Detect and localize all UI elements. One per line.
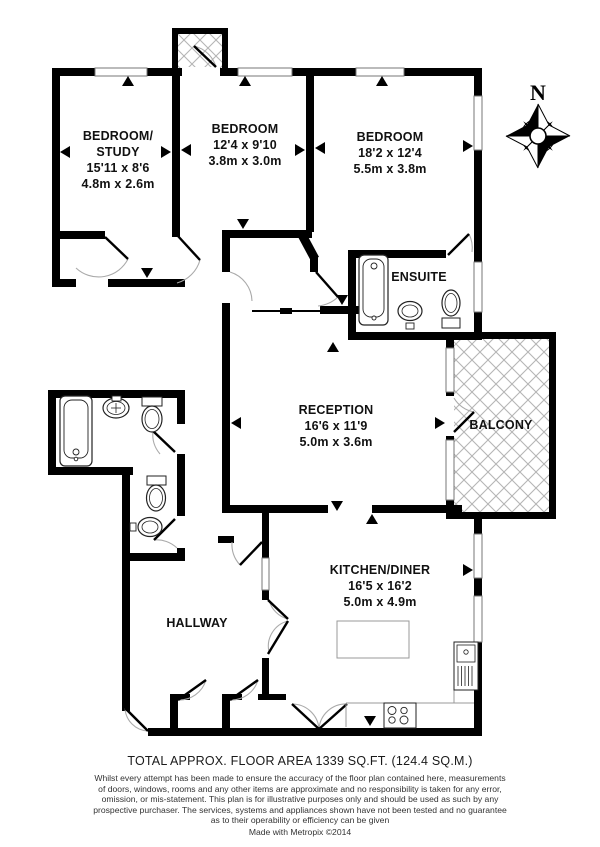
wc-sink xyxy=(130,518,162,537)
hob xyxy=(384,703,416,728)
reception-dims-metric: 5.0m x 3.6m xyxy=(299,435,372,449)
bedroom2-label: BEDROOM xyxy=(212,122,279,136)
disclaimer-line2: of doors, windows, rooms and any other i… xyxy=(0,784,600,795)
floor-plan-svg: N BEDROOM/ STUDY 15'11 x 8'6 4.8m x 2.6m… xyxy=(0,0,600,745)
bedroom2-dims-imperial: 12'4 x 9'10 xyxy=(213,138,277,152)
kitchen-label: KITCHEN/DINER xyxy=(330,563,431,577)
window-bedroom3-right xyxy=(474,96,482,150)
window-divider-panel xyxy=(262,558,269,590)
reception-dims-imperial: 16'6 x 11'9 xyxy=(304,419,367,433)
kitchen-dims-metric: 5.0m x 4.9m xyxy=(343,595,416,609)
disclaimer-line3: omission, or mis-statement. This plan is… xyxy=(0,794,600,805)
study-dims-metric: 4.8m x 2.6m xyxy=(81,177,154,191)
study-door xyxy=(105,237,128,259)
ensuite-toilet xyxy=(442,290,460,328)
disclaimer-line1: Whilst every attempt has been made to en… xyxy=(0,773,600,784)
compass-rose: N xyxy=(506,80,570,168)
study-dims-imperial: 15'11 x 8'6 xyxy=(86,161,149,175)
hall-reception-door xyxy=(240,542,262,565)
footer: TOTAL APPROX. FLOOR AREA 1339 SQ.FT. (12… xyxy=(0,750,600,837)
bedroom3-door xyxy=(316,272,338,297)
window-kitchen-b xyxy=(474,596,482,642)
balcony-label: BALCONY xyxy=(469,418,533,432)
floor-plan: N BEDROOM/ STUDY 15'11 x 8'6 4.8m x 2.6m… xyxy=(0,0,600,745)
floorplan-page: N BEDROOM/ STUDY 15'11 x 8'6 4.8m x 2.6m… xyxy=(0,0,600,847)
bedroom2-door xyxy=(177,235,200,260)
window-reception-a xyxy=(446,348,454,392)
bedroom3-label: BEDROOM xyxy=(357,130,424,144)
ensuite-sink xyxy=(398,302,422,330)
total-area-text: TOTAL APPROX. FLOOR AREA 1339 SQ.FT. (12… xyxy=(0,754,600,768)
kitchen-island xyxy=(337,621,409,658)
bathroom-bathtub xyxy=(60,396,92,466)
kitchen-double-door-a xyxy=(268,600,288,619)
bedroom2-dims-metric: 3.8m x 3.0m xyxy=(208,154,281,168)
study-label: BEDROOM/ xyxy=(83,129,154,143)
bathroom-toilet xyxy=(142,397,162,432)
window-reception-b xyxy=(446,440,454,500)
north-label: N xyxy=(530,80,546,105)
disclaimer-line5: as to their operability or efficiency ca… xyxy=(0,815,600,826)
kitchen-dims-imperial: 16'5 x 16'2 xyxy=(348,579,412,593)
ensuite-bathtub xyxy=(359,255,388,325)
ensuite-label: ENSUITE xyxy=(391,270,447,284)
bathroom-sink xyxy=(103,396,129,418)
window-kitchen-a xyxy=(474,534,482,578)
window-bedroom2 xyxy=(238,68,292,76)
disclaimer-line4: prospective purchaser. The services, sys… xyxy=(0,805,600,816)
hallway-label: HALLWAY xyxy=(166,616,228,630)
wc-toilet xyxy=(147,476,167,511)
window-bedroom3-top xyxy=(356,68,404,76)
bedroom3-dims-imperial: 18'2 x 12'4 xyxy=(358,146,422,160)
kitchen-sink xyxy=(454,642,478,690)
reception-label: RECEPTION xyxy=(299,403,374,417)
window-study xyxy=(95,68,147,76)
study-label2: STUDY xyxy=(96,145,140,159)
credit-text: Made with Metropix ©2014 xyxy=(0,827,600,837)
window-ensuite xyxy=(474,262,482,312)
bedroom3-dims-metric: 5.5m x 3.8m xyxy=(353,162,426,176)
